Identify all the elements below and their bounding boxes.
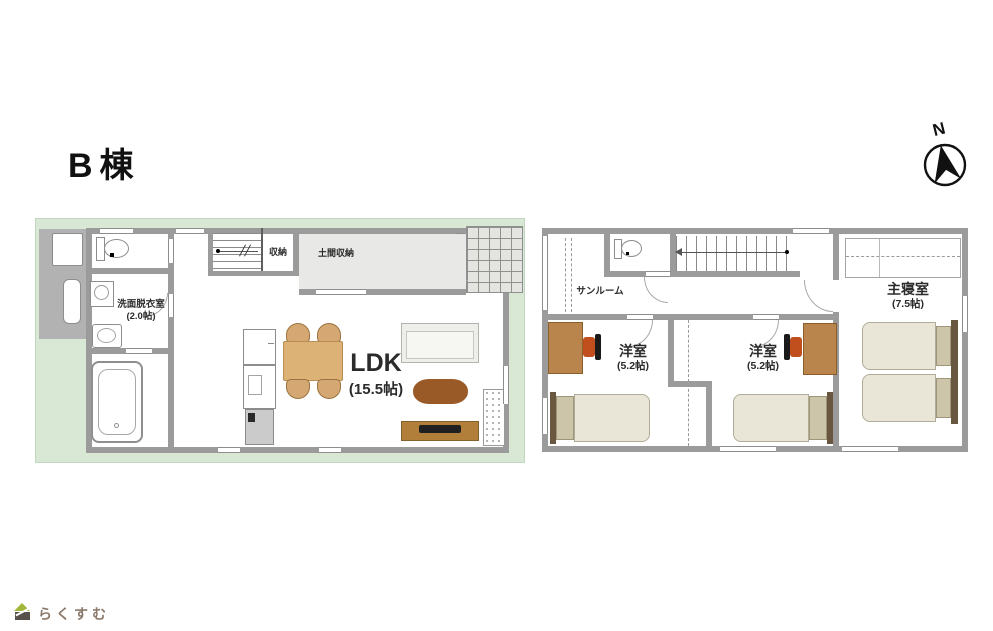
west1-name: 洋室 <box>597 342 669 360</box>
room-label-sunroom: サンルーム <box>560 286 640 298</box>
room-label-west2: 洋室 (5.2帖) <box>727 342 799 374</box>
bed-pillow <box>936 378 951 418</box>
bath-door-opening <box>126 348 152 354</box>
future-partition-dashed-line <box>688 320 690 446</box>
washing-machine-drum <box>94 285 109 300</box>
master-closet <box>845 238 961 278</box>
floorplan-sheet: B棟 N <box>0 0 993 631</box>
washroom-size: (2.0帖) <box>98 311 184 323</box>
window <box>176 228 204 234</box>
desk <box>548 322 583 374</box>
stairs-2f <box>676 236 796 271</box>
wall-segment <box>604 271 646 277</box>
room-label-washroom: 洗面脱衣室 (2.0帖) <box>98 299 184 324</box>
floor1-plan: 洗面脱衣室 (2.0帖) 収納 土間収納 LDK (15.5帖) <box>35 218 525 463</box>
house-icon <box>14 603 31 620</box>
room-label-ldk: LDK (15.5帖) <box>321 347 431 399</box>
wall-segment <box>833 234 839 280</box>
refrigerator <box>243 329 276 365</box>
bed <box>862 322 936 370</box>
window <box>720 446 776 452</box>
stairs-direction-line <box>682 252 786 253</box>
master-name: 主寝室 <box>870 280 946 298</box>
toilet-detail <box>110 253 114 257</box>
water-heater-unit <box>63 279 81 324</box>
stove-detail <box>248 413 255 422</box>
toilet-sliding-door <box>168 239 174 263</box>
master-size: (7.5帖) <box>870 298 946 312</box>
wall-segment <box>604 234 610 272</box>
stairs-arrowhead <box>675 248 682 256</box>
window <box>319 447 341 453</box>
west2-name: 洋室 <box>727 342 799 360</box>
outdoor-unit <box>52 233 83 266</box>
window <box>100 228 133 234</box>
stairs-direction-line <box>220 251 258 252</box>
wall-segment <box>168 317 174 448</box>
wall-segment <box>168 263 174 294</box>
ldk-size: (15.5帖) <box>321 380 431 400</box>
vanity-basin <box>97 328 116 343</box>
room-label-master: 主寝室 (7.5帖) <box>870 280 946 312</box>
bed-pillow <box>556 396 574 440</box>
wall-segment <box>706 381 712 446</box>
stairs-1f <box>213 233 261 271</box>
logo-text: らくすむ <box>38 604 110 624</box>
bed-pillow <box>809 396 827 440</box>
room-label-doma: 土間収納 <box>306 248 366 260</box>
bed <box>733 394 809 442</box>
doma-storage-floor <box>299 234 466 292</box>
bed-headboard <box>951 372 958 424</box>
stairs-end-dot <box>785 250 789 254</box>
bed <box>574 394 650 442</box>
closet-shelf-line <box>879 239 880 277</box>
toilet-bowl <box>621 240 642 257</box>
bed-headboard <box>827 392 833 444</box>
north-compass: N <box>914 110 976 198</box>
window <box>218 447 240 453</box>
wall-segment <box>208 271 299 276</box>
dining-chair <box>286 323 310 343</box>
window <box>962 296 968 332</box>
closet-pole-dashed-line <box>846 256 960 257</box>
window <box>793 228 829 234</box>
laundry-pole-dashed-line <box>565 238 567 312</box>
window <box>503 366 509 404</box>
bed-pillow <box>936 326 951 366</box>
washroom-name: 洗面脱衣室 <box>98 299 184 311</box>
floor2-plan: サンルーム 洋室 (5.2帖) 洋室 (5.2帖) 主寝室 (7.5帖) <box>540 222 988 457</box>
room-label-west1: 洋室 (5.2帖) <box>597 342 669 374</box>
page-title: B棟 <box>68 138 141 187</box>
north-label: N <box>931 119 948 140</box>
dining-chair <box>317 323 341 343</box>
kitchen-sink <box>248 375 262 395</box>
storage-shelf <box>483 389 505 446</box>
west1-size: (5.2帖) <box>597 360 669 374</box>
laundry-pole-dashed-line <box>571 238 573 312</box>
bed-headboard <box>951 320 958 372</box>
window <box>542 398 548 434</box>
toilet-bowl <box>104 239 129 258</box>
wall-segment <box>548 314 833 320</box>
desk <box>803 323 837 375</box>
footer-logo: らくすむ <box>14 601 214 623</box>
bed <box>862 374 936 422</box>
window <box>542 236 548 310</box>
bath-drain <box>114 423 119 428</box>
wall-segment <box>670 271 800 277</box>
toilet-detail <box>626 252 629 255</box>
refrigerator-handle <box>268 343 274 344</box>
television <box>419 425 461 433</box>
window <box>842 446 898 452</box>
wall-segment <box>92 268 168 274</box>
west2-size: (5.2帖) <box>727 360 799 374</box>
entrance-tile-area <box>466 226 523 293</box>
room-label-closet: 収納 <box>263 247 293 259</box>
doma-sliding-door <box>316 289 366 295</box>
ldk-name: LDK <box>321 347 431 380</box>
desk-chair <box>583 337 595 357</box>
